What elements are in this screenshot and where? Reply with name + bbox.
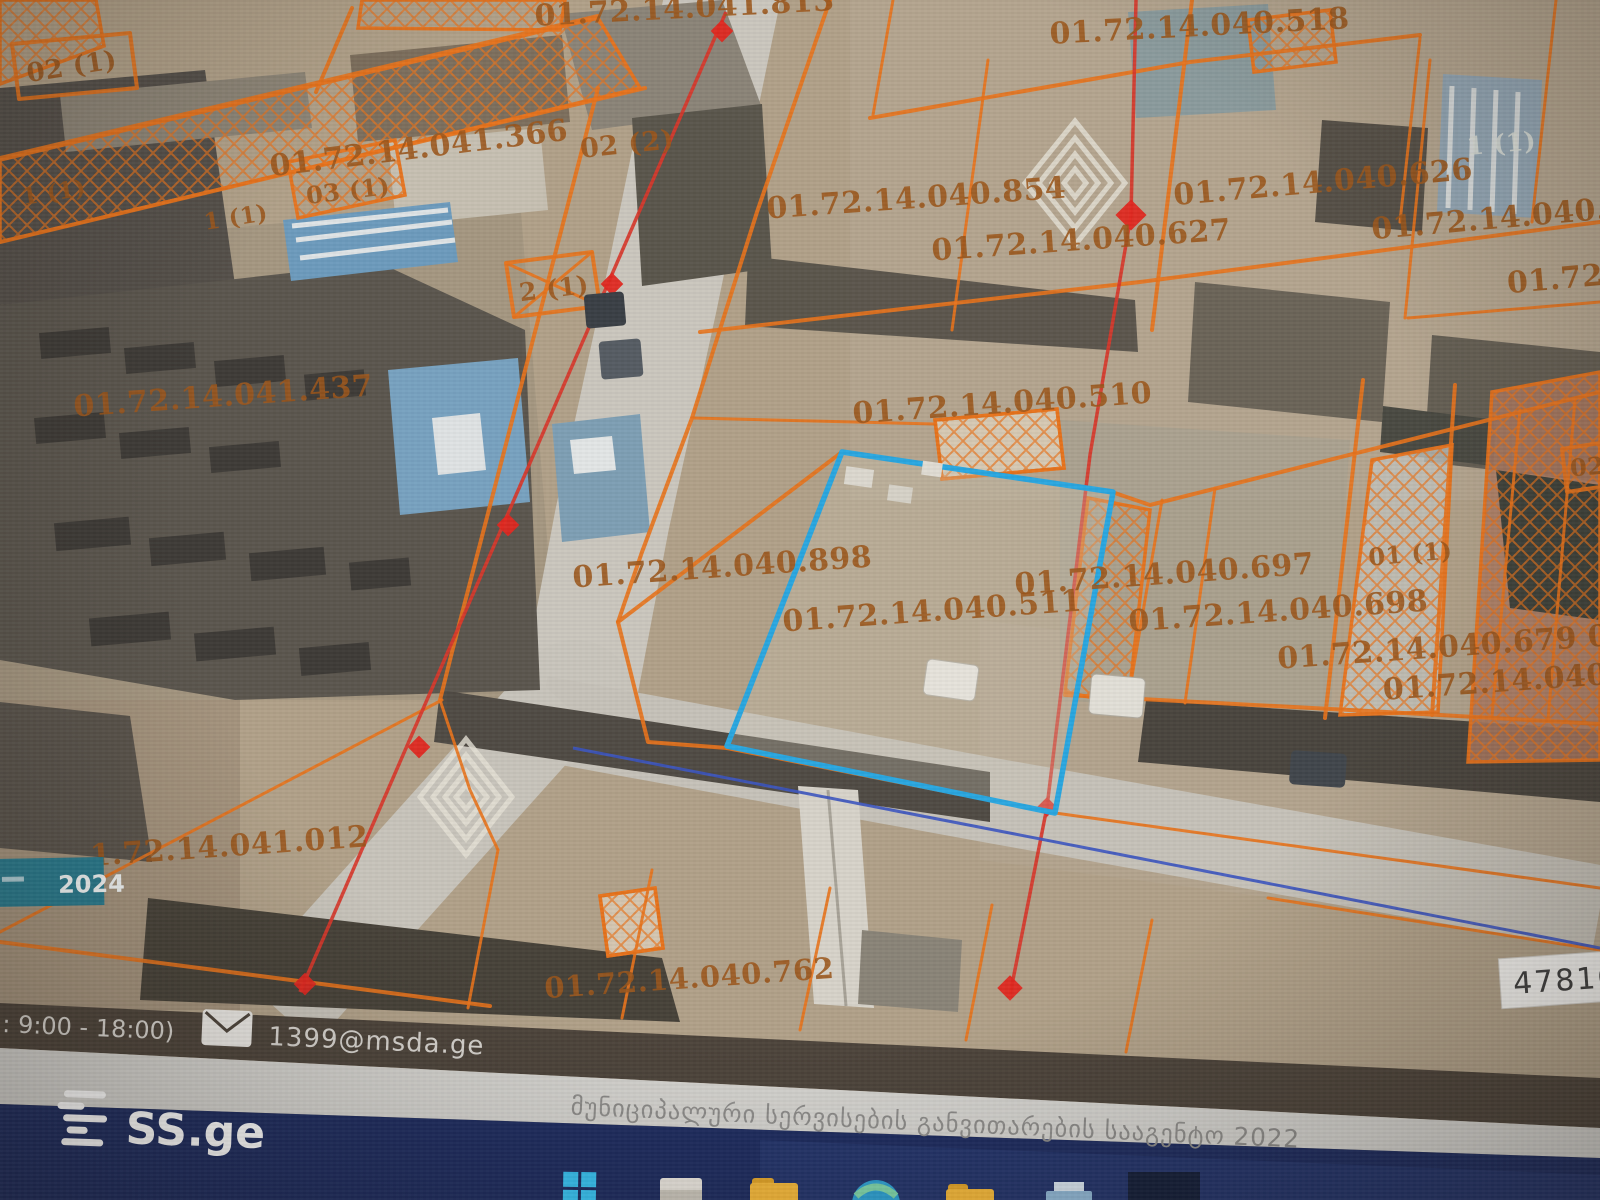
- photographed-monitor-screenshot: 01.72.14.041.813 01.72.14.040.518 02 (1)…: [0, 0, 1600, 1200]
- dark-window-tile[interactable]: [1128, 1172, 1200, 1200]
- ortho-year-label: 2024: [58, 870, 125, 899]
- parcel-code-label: 1 (1): [1465, 126, 1537, 161]
- listing-id-badge: 478168: [1498, 949, 1600, 1009]
- parcel-code-label: 02: [1569, 451, 1600, 483]
- envelope-icon: [201, 1009, 253, 1047]
- file-explorer-icon[interactable]: [660, 1178, 702, 1200]
- cadastral-map-canvas[interactable]: 01.72.14.041.813 01.72.14.040.518 02 (1)…: [0, 0, 1600, 1200]
- ssge-brand-text: SS.ge: [125, 1103, 266, 1159]
